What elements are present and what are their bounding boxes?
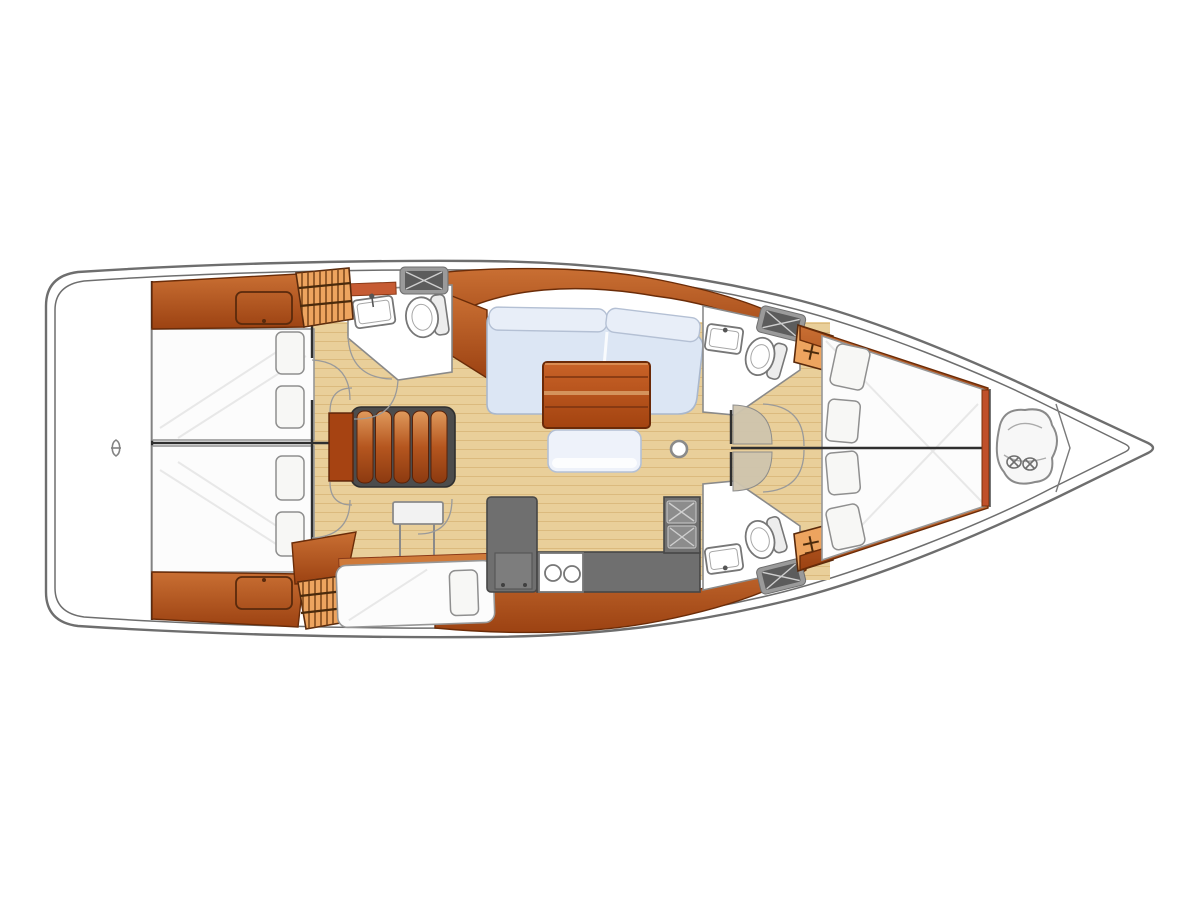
aft-head-shelf <box>350 282 396 296</box>
table-leaf-seam <box>544 391 649 395</box>
galley-fridge <box>495 553 532 589</box>
settee-back-cushion <box>489 307 607 332</box>
step-tread <box>394 411 410 483</box>
fridge-handle <box>523 583 527 587</box>
fwd-bulkhead-trim <box>982 390 989 506</box>
layout-plan-svg <box>0 0 1200 900</box>
anchor-rode-bag <box>997 409 1057 483</box>
aft-cabin-starboard <box>152 446 314 627</box>
galley-twin-sinks <box>539 553 583 592</box>
step-tread <box>431 411 447 483</box>
locker-knob <box>262 578 266 582</box>
pillow <box>825 399 861 444</box>
deck-hatch-aft <box>400 267 448 294</box>
step-tread <box>357 411 373 483</box>
pillow <box>276 456 304 500</box>
aft-port-shelf <box>152 274 304 329</box>
step-tread <box>376 411 392 483</box>
saloon-table <box>543 362 650 428</box>
pillow <box>276 386 304 428</box>
aft-cabin-port <box>152 274 314 440</box>
fwd-stbd-washbasin <box>704 544 743 575</box>
locker-knob <box>262 319 266 323</box>
bench-front-edge <box>552 458 637 468</box>
companionway-steps <box>329 407 455 487</box>
fridge-handle <box>501 583 505 587</box>
step-tread <box>413 411 429 483</box>
engine-box <box>329 413 353 481</box>
hanging-locker-aft-port <box>296 268 353 327</box>
fwd-port-washbasin <box>704 324 743 355</box>
saloon-bench <box>548 430 641 472</box>
pillow <box>449 570 479 616</box>
aft-starboard-shelf <box>152 572 304 627</box>
pillow <box>276 332 304 374</box>
mast-post <box>671 441 687 457</box>
boat-layout-canvas <box>0 0 1200 900</box>
pillow <box>825 451 861 496</box>
chaise-berth <box>336 553 495 627</box>
